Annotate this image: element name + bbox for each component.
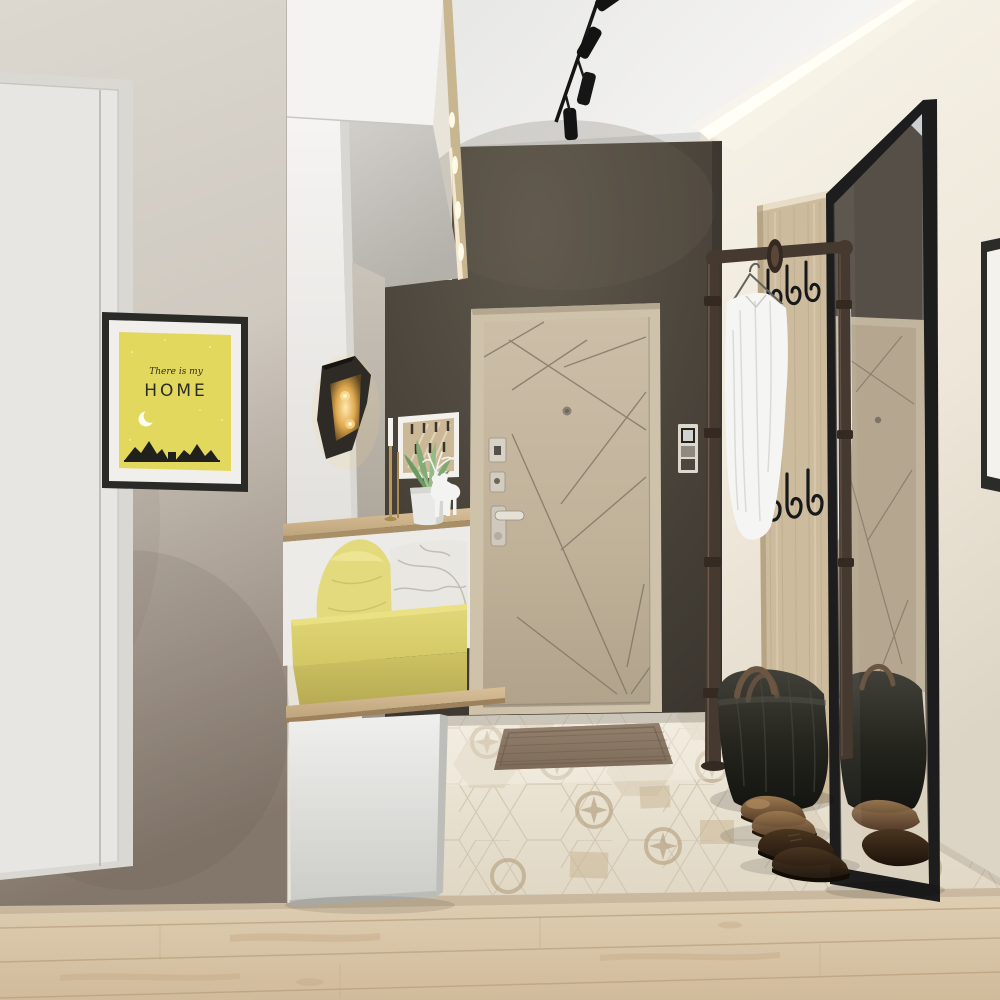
upper-cabinet [287,0,443,126]
wall-frame-right [981,238,1000,492]
bench-base-cabinet [289,714,440,906]
rack-base-flange [701,761,727,771]
home-poster: There is my HOME [102,312,248,492]
doormat [494,723,673,770]
intercom-panel [678,424,698,473]
poster-script-text: There is my [149,367,204,377]
entrance-door [469,303,662,715]
wood-plank-floor [0,888,1000,1000]
poster-title-text: HOME [144,381,208,401]
wall-sconce [312,354,380,470]
hallway-scene: There is my HOME [0,0,1000,1000]
duffel-bag [718,669,829,811]
leaf-art [398,412,459,479]
track-light-head [563,108,578,141]
left-wall: There is my HOME [0,0,290,907]
